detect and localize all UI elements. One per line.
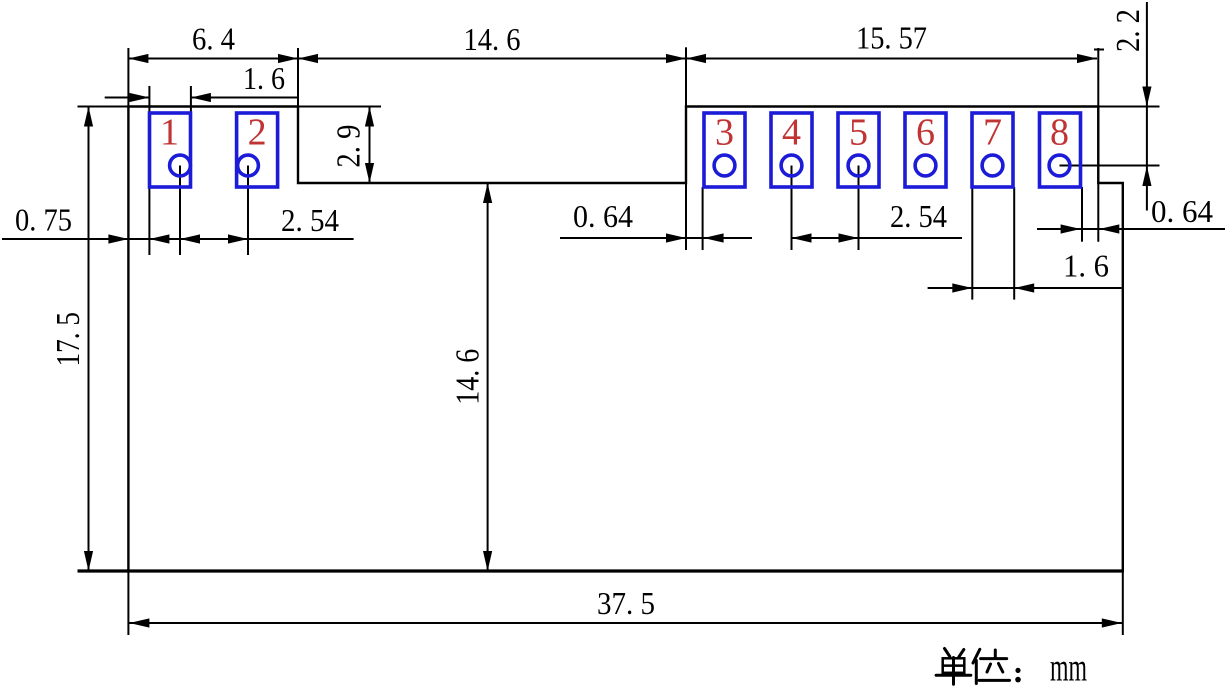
svg-text:2. 54: 2. 54 xyxy=(890,198,947,234)
svg-text:15. 57: 15. 57 xyxy=(856,20,927,56)
svg-text:14. 6: 14. 6 xyxy=(450,349,487,405)
svg-text:1: 1 xyxy=(160,112,179,154)
svg-text:17. 5: 17. 5 xyxy=(50,312,87,367)
svg-text:37. 5: 37. 5 xyxy=(597,585,655,621)
svg-text:7: 7 xyxy=(983,112,1002,154)
svg-text:2: 2 xyxy=(248,112,267,154)
svg-text:0. 64: 0. 64 xyxy=(573,198,633,234)
svg-text:6. 4: 6. 4 xyxy=(192,21,235,57)
svg-text:1. 6: 1. 6 xyxy=(243,60,285,96)
svg-text:8: 8 xyxy=(1050,112,1069,154)
svg-text:0. 75: 0. 75 xyxy=(15,202,72,238)
svg-text:5: 5 xyxy=(849,112,868,154)
svg-text:2. 9: 2. 9 xyxy=(331,125,368,168)
svg-text:4: 4 xyxy=(782,112,801,154)
svg-text:1. 6: 1. 6 xyxy=(1063,247,1109,283)
svg-text:3: 3 xyxy=(715,112,734,154)
svg-text:mm: mm xyxy=(1050,644,1087,689)
svg-text:2. 2: 2. 2 xyxy=(1110,9,1147,52)
svg-text:0. 64: 0. 64 xyxy=(1151,193,1213,229)
svg-text:2. 54: 2. 54 xyxy=(281,202,339,238)
svg-text:14. 6: 14. 6 xyxy=(464,21,521,57)
svg-text:6: 6 xyxy=(916,112,935,154)
